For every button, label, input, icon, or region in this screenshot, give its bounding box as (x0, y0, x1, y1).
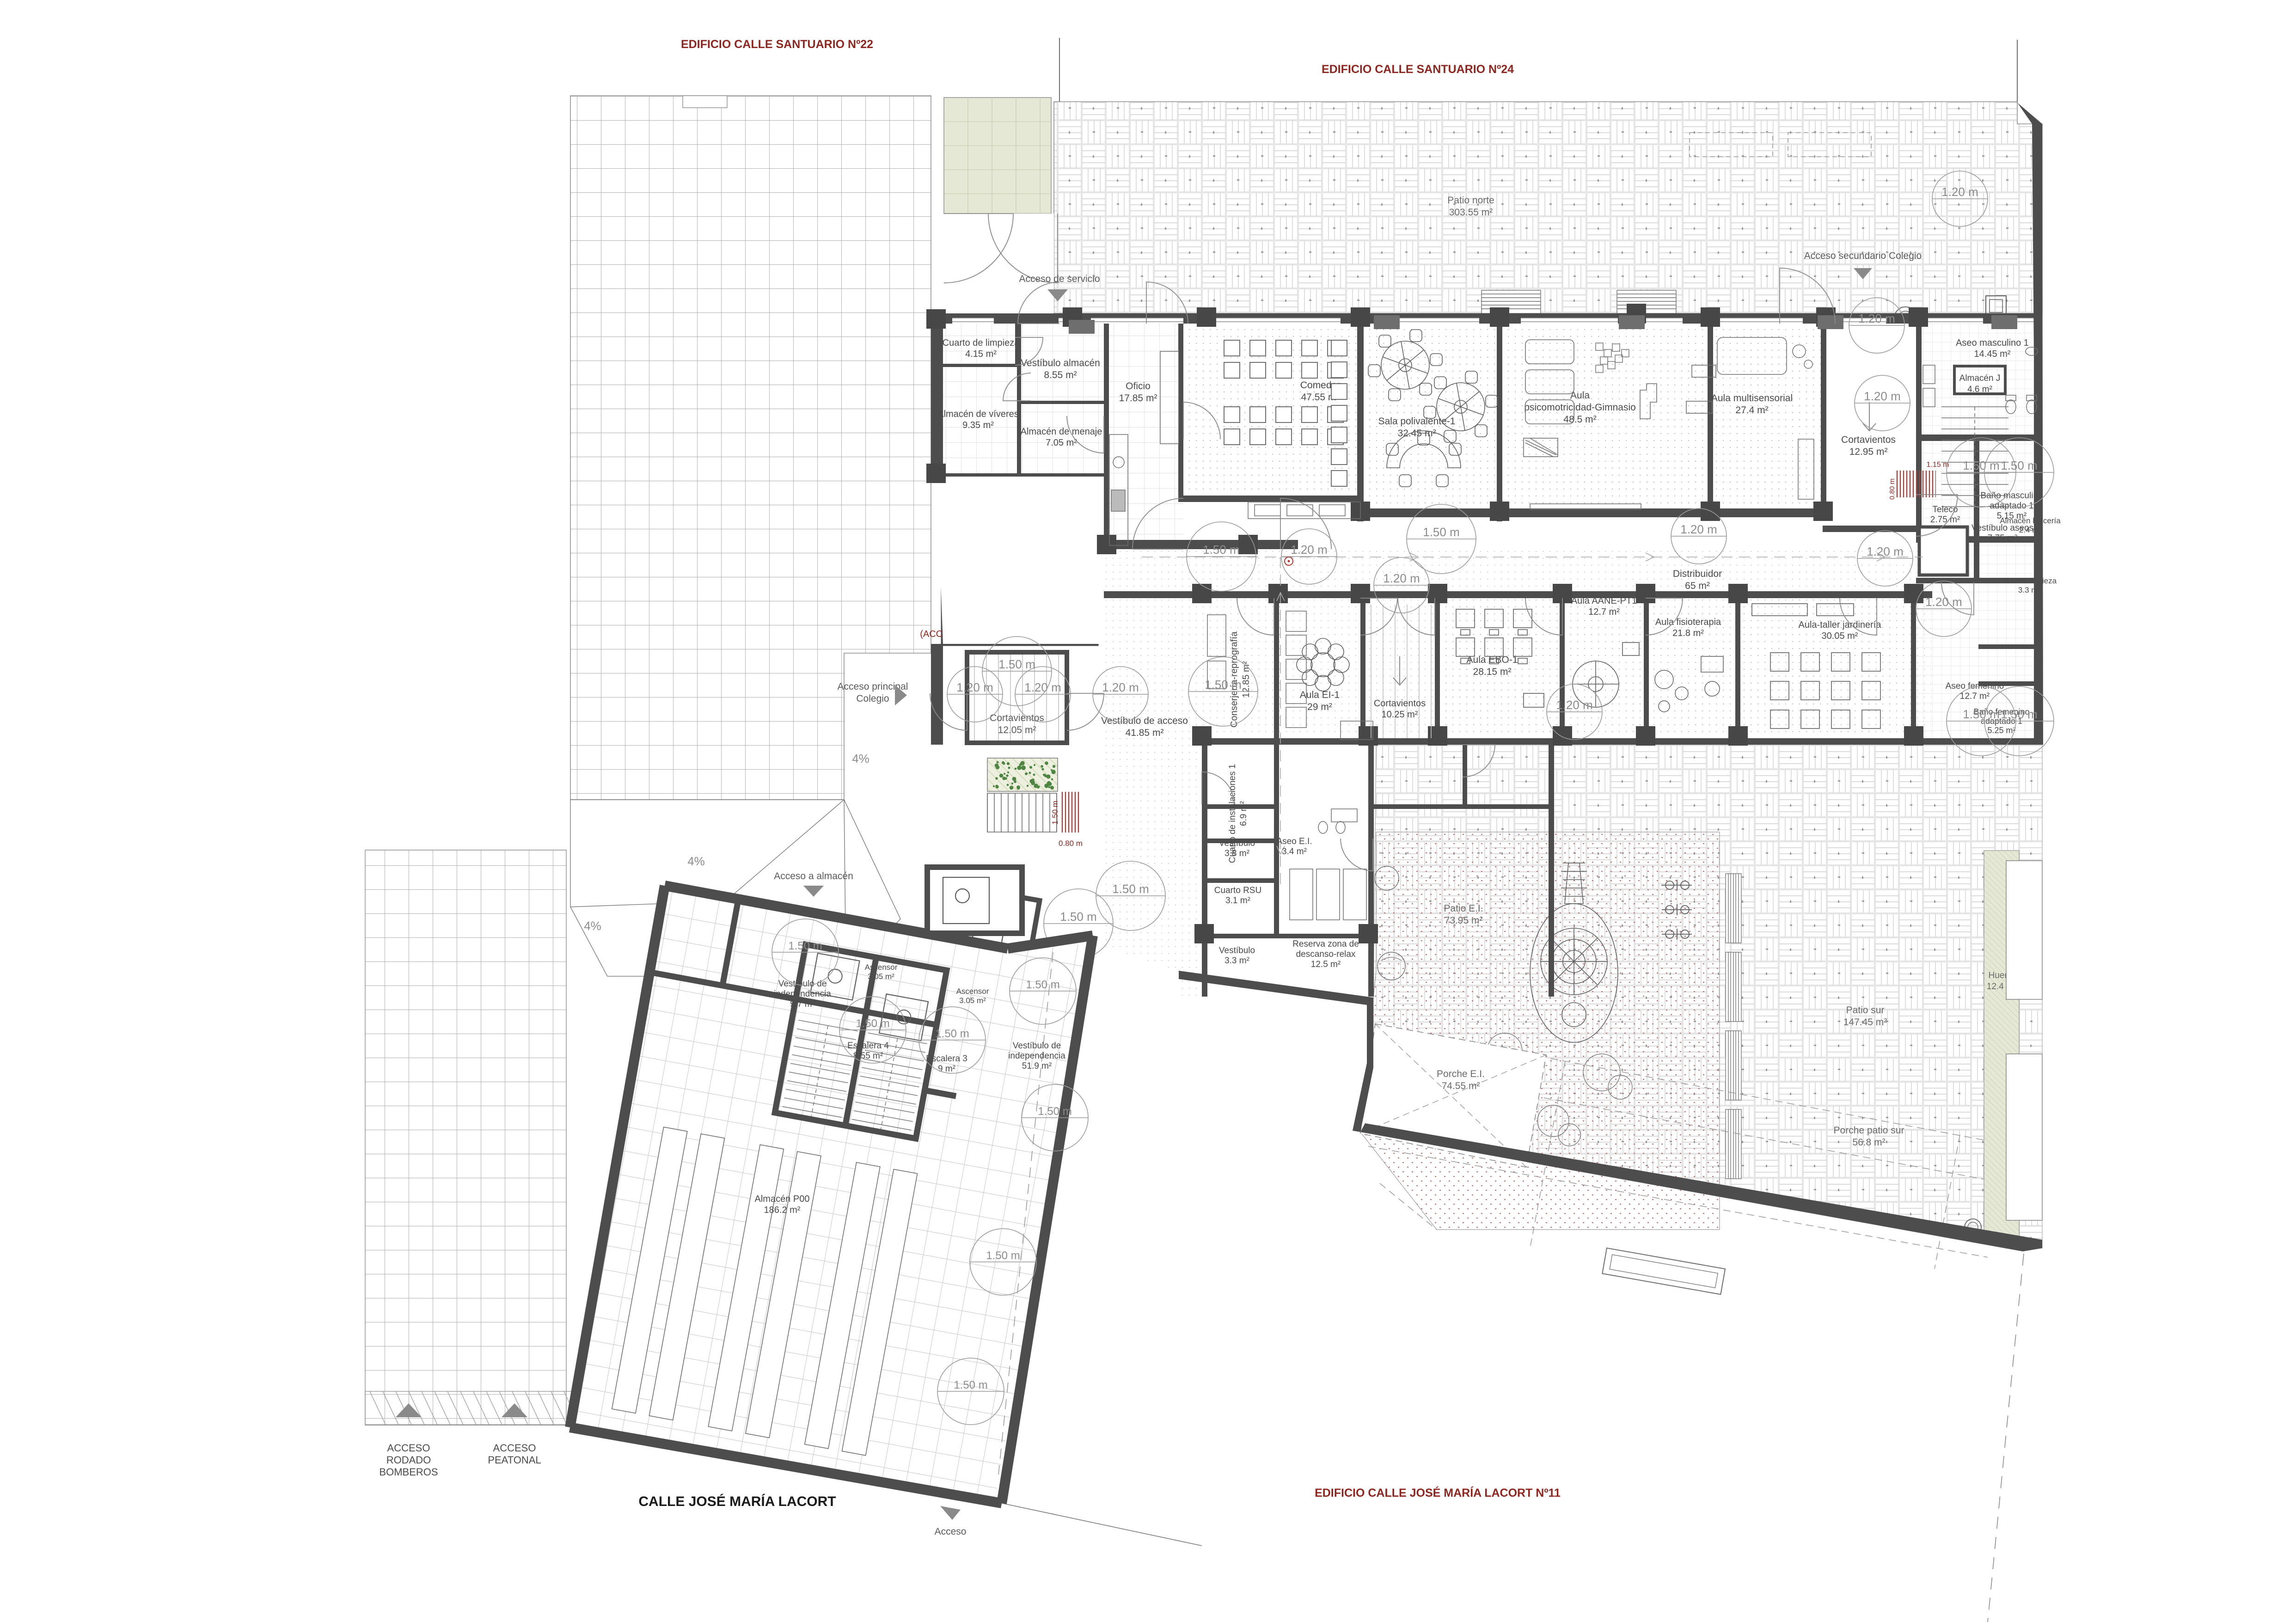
svg-text:10.25 m²: 10.25 m² (1382, 710, 1418, 720)
svg-text:1.20 m: 1.20 m (1680, 522, 1717, 536)
svg-text:1.50 m: 1.50 m (1963, 707, 2000, 721)
svg-text:Oficio: Oficio (1126, 381, 1151, 392)
svg-text:Almacén P00: Almacén P00 (755, 1194, 810, 1204)
svg-text:1.20 m: 1.20 m (1556, 698, 1593, 712)
svg-text:Vestíbulo de: Vestíbulo de (1013, 1041, 1061, 1051)
svg-text:Aula fisioterapia: Aula fisioterapia (1655, 617, 1721, 627)
svg-text:Acceso secundario Colegio: Acceso secundario Colegio (1804, 251, 1922, 261)
svg-text:Cortavientos: Cortavientos (990, 713, 1044, 723)
svg-text:1.20 m: 1.20 m (1867, 545, 1904, 558)
svg-text:EDIFICIO CALLE JOSÉ MARÍA LACO: EDIFICIO CALLE JOSÉ MARÍA LACORT Nº11 (1315, 1486, 1561, 1500)
svg-text:1.50 m: 1.50 m (1423, 525, 1460, 539)
svg-text:7.75 m²: 7.75 m² (1988, 533, 2017, 543)
svg-text:Reserva zona de: Reserva zona de (1292, 939, 1359, 949)
svg-text:Colegio: Colegio (856, 693, 889, 704)
svg-text:Aseo E.I.: Aseo E.I. (1276, 837, 1312, 846)
svg-text:Ascensor: Ascensor (865, 963, 898, 972)
svg-text:303.55 m²: 303.55 m² (1449, 207, 1493, 218)
svg-text:1.20 m: 1.20 m (1102, 680, 1139, 694)
svg-text:1.50 m: 1.50 m (1203, 543, 1240, 557)
svg-text:12.05 m²: 12.05 m² (998, 725, 1036, 735)
svg-text:9.35 m²: 9.35 m² (962, 420, 994, 430)
svg-text:41.85 m²: 41.85 m² (1126, 728, 1164, 738)
svg-text:12.85 m²: 12.85 m² (1241, 661, 1251, 698)
svg-text:1.50 m: 1.50 m (1112, 882, 1149, 896)
svg-text:4%: 4% (687, 854, 705, 868)
svg-text:independencia: independencia (1008, 1051, 1065, 1061)
svg-text:4%: 4% (584, 919, 601, 933)
svg-text:1.15 m: 1.15 m (1927, 461, 1949, 469)
svg-text:1.50 m: 1.50 m (998, 657, 1035, 671)
svg-text:Cortavientos: Cortavientos (1841, 435, 1896, 445)
svg-text:1.50 m: 1.50 m (986, 1249, 1020, 1262)
svg-text:9 m²: 9 m² (938, 1064, 955, 1074)
svg-text:21.8 m²: 21.8 m² (1672, 628, 1704, 638)
svg-text:1.20 m: 1.20 m (1858, 312, 1895, 325)
svg-text:1.50 m: 1.50 m (1060, 910, 1097, 924)
svg-text:12.95 m²: 12.95 m² (1849, 447, 1888, 457)
svg-text:Almacén de víveres: Almacén de víveres (937, 409, 1019, 419)
svg-text:1.20 m: 1.20 m (1291, 543, 1328, 557)
svg-text:1.50 m: 1.50 m (788, 940, 822, 952)
svg-text:Almacén de menaje: Almacén de menaje (1021, 427, 1102, 437)
svg-text:29 m²: 29 m² (1307, 702, 1332, 712)
svg-text:3.3 m²: 3.3 m² (2018, 586, 2041, 594)
svg-text:1.50 m: 1.50 m (2001, 707, 2038, 721)
svg-text:56.8 m²: 56.8 m² (1852, 1137, 1885, 1148)
svg-text:17.85 m²: 17.85 m² (1119, 393, 1157, 404)
svg-text:Porche E.I.: Porche E.I. (1437, 1069, 1485, 1079)
svg-text:ACCESORODADOBOMBEROS: ACCESORODADOBOMBEROS (379, 1442, 438, 1478)
svg-text:Cuarto limpieza: Cuarto limpieza (2002, 576, 2057, 585)
svg-text:28.15 m²: 28.15 m² (1473, 667, 1512, 677)
svg-text:1.50 m: 1.50 m (1205, 678, 1242, 692)
svg-text:12.5 m²: 12.5 m² (1311, 960, 1341, 969)
svg-text:Porche patio sur: Porche patio sur (1834, 1125, 1904, 1136)
svg-text:Vestíbulo: Vestíbulo (1219, 946, 1255, 955)
svg-text:27.4 m²: 27.4 m² (1735, 405, 1768, 416)
svg-text:6.9 m²: 6.9 m² (1239, 801, 1249, 826)
svg-text:3.05 m²: 3.05 m² (868, 972, 894, 981)
svg-text:12.7 m²: 12.7 m² (1960, 692, 1990, 701)
svg-text:5.25 m²: 5.25 m² (1987, 726, 2015, 735)
svg-text:48.5 m²: 48.5 m² (1563, 414, 1596, 425)
svg-text:2.4 m²: 2.4 m² (2019, 526, 2042, 534)
svg-text:Vestíbulo de: Vestíbulo de (778, 979, 827, 989)
svg-text:186.2 m²: 186.2 m² (764, 1205, 801, 1215)
svg-text:Escalera 4: Escalera 4 (847, 1041, 889, 1051)
svg-text:1.20 m: 1.20 m (1941, 185, 1978, 199)
svg-text:1.50 m: 1.50 m (1026, 979, 1059, 991)
svg-text:74.55 m²: 74.55 m² (1442, 1081, 1480, 1091)
svg-text:1.20 m: 1.20 m (1024, 680, 1061, 694)
svg-text:Distribuidor: Distribuidor (1673, 569, 1722, 579)
svg-text:Vestíbulo de acceso: Vestíbulo de acceso (1101, 716, 1188, 726)
svg-text:30.05 m²: 30.05 m² (1822, 631, 1858, 641)
svg-text:psicomotricidad-Gimnasio: psicomotricidad-Gimnasio (1524, 402, 1636, 413)
svg-text:147.45 m²: 147.45 m² (1843, 1017, 1887, 1028)
svg-text:Acceso a almacén: Acceso a almacén (774, 871, 853, 881)
svg-text:4%: 4% (852, 752, 869, 765)
svg-text:EDIFICIO CALLE SANTUARIO Nº22: EDIFICIO CALLE SANTUARIO Nº22 (681, 38, 873, 51)
svg-text:Cortavientos: Cortavientos (1374, 698, 1426, 709)
svg-text:1.20 m: 1.20 m (1925, 595, 1962, 609)
svg-text:1.20 m: 1.20 m (956, 680, 993, 694)
svg-text:Teleco: Teleco (1933, 505, 1958, 514)
svg-text:Aula-taller jardinería: Aula-taller jardinería (1799, 620, 1882, 630)
svg-text:9.7 m²: 9.7 m² (790, 999, 815, 1009)
svg-text:Escalera 3: Escalera 3 (926, 1054, 967, 1064)
svg-text:Patio sur: Patio sur (1846, 1005, 1885, 1016)
svg-text:ACCESOPEATONAL: ACCESOPEATONAL (488, 1442, 541, 1466)
svg-text:7.05 m²: 7.05 m² (1046, 438, 1077, 448)
svg-text:Sala polivalente-1: Sala polivalente-1 (1378, 416, 1456, 427)
svg-text:3.8 m²: 3.8 m² (1225, 849, 1249, 858)
svg-text:Aula multisensorial: Aula multisensorial (1711, 393, 1793, 404)
svg-text:Cuarto de limpieza: Cuarto de limpieza (943, 338, 1020, 348)
svg-text:2.75 m²: 2.75 m² (1930, 515, 1960, 525)
svg-text:1.50 m: 1.50 m (1963, 459, 2000, 472)
svg-text:3.3 m²: 3.3 m² (1225, 956, 1249, 966)
svg-text:0.80 m: 0.80 m (1059, 839, 1083, 848)
svg-text:12.7 m²: 12.7 m² (1588, 607, 1620, 617)
svg-text:Cuarto RSU: Cuarto RSU (1214, 886, 1261, 895)
svg-text:descanso-relax: descanso-relax (1296, 949, 1356, 959)
svg-text:65 m²: 65 m² (1685, 581, 1710, 591)
svg-text:73.95 m²: 73.95 m² (1445, 915, 1483, 926)
svg-text:1.20 m: 1.20 m (1864, 389, 1901, 403)
svg-text:3.1 m²: 3.1 m² (1225, 896, 1250, 906)
svg-text:1.50 m: 1.50 m (856, 1017, 889, 1030)
svg-text:Aula EI-1: Aula EI-1 (1300, 690, 1340, 700)
svg-text:Patio norte: Patio norte (1447, 195, 1494, 206)
svg-text:independencia: independencia (774, 989, 831, 999)
svg-text:8.55 m²: 8.55 m² (1044, 370, 1077, 380)
svg-text:1.50 m: 1.50 m (2001, 459, 2038, 472)
svg-text:CALLE JOSÉ MARÍA LACORT: CALLE JOSÉ MARÍA LACORT (638, 1493, 836, 1509)
svg-text:Vestíbulo: Vestíbulo (1219, 839, 1255, 848)
svg-text:Baño masculino: Baño masculino (1980, 491, 2043, 501)
svg-text:Acceso de servicio: Acceso de servicio (1019, 274, 1100, 284)
svg-text:Patio E.I.: Patio E.I. (1444, 903, 1483, 914)
svg-text:1.50 m: 1.50 m (954, 1379, 987, 1391)
svg-text:Aseo masculino 1: Aseo masculino 1 (1956, 338, 2029, 348)
svg-text:1.50 m: 1.50 m (1051, 801, 1059, 825)
svg-text:14.45 m²: 14.45 m² (1974, 349, 2011, 359)
svg-text:Almacén J: Almacén J (1959, 373, 2001, 383)
svg-text:Almacén lencería: Almacén lencería (2000, 516, 2061, 525)
svg-text:EDIFICIO CALLE SANTUARIO Nº24: EDIFICIO CALLE SANTUARIO Nº24 (1322, 63, 1514, 76)
svg-text:51.9 m²: 51.9 m² (1022, 1061, 1052, 1071)
svg-text:1.50 m: 1.50 m (935, 1028, 969, 1040)
svg-text:3.05 m²: 3.05 m² (959, 996, 986, 1005)
svg-text:4.15 m²: 4.15 m² (965, 349, 997, 359)
svg-text:Ascensor: Ascensor (956, 987, 989, 996)
svg-text:Acceso: Acceso (935, 1526, 967, 1537)
svg-text:Aula AANE-PT1: Aula AANE-PT1 (1571, 596, 1637, 606)
svg-text:0.80 m: 0.80 m (1888, 478, 1896, 500)
svg-text:1.20 m: 1.20 m (1383, 571, 1420, 585)
svg-text:3.4 m²: 3.4 m² (1282, 847, 1307, 857)
svg-text:1.50 m: 1.50 m (1038, 1105, 1071, 1118)
